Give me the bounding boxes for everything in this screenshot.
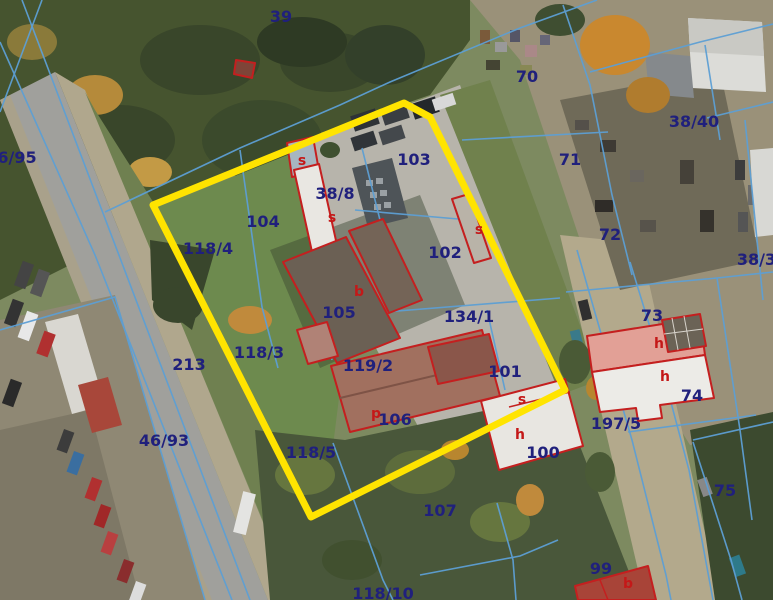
map-graphics [0,0,773,600]
map-canvas[interactable]: 396/957038/4071103104118/438/81027238/38… [0,0,773,600]
